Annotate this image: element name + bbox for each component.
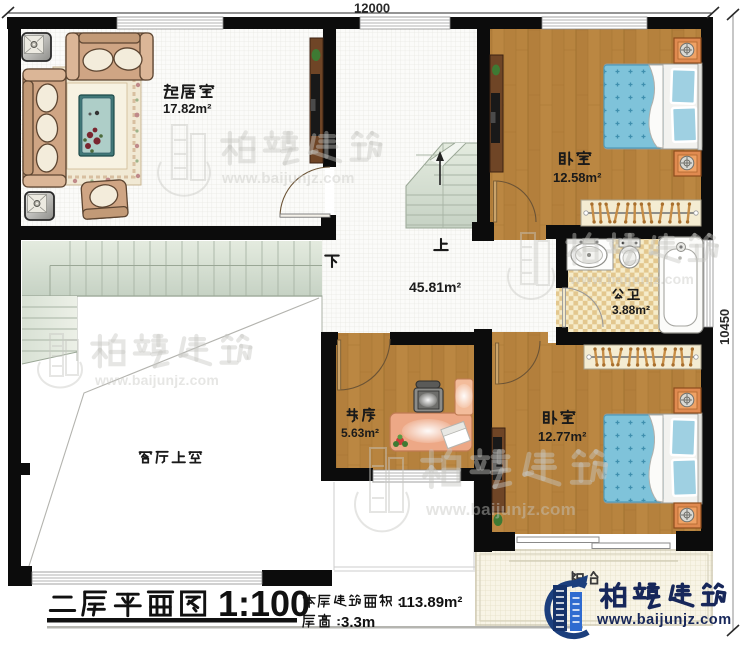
svg-text:45.81m²: 45.81m² <box>409 279 461 295</box>
svg-text:www.baijunjz.com: www.baijunjz.com <box>569 271 694 287</box>
svg-text:3.88m²: 3.88m² <box>612 303 650 317</box>
svg-text:12000: 12000 <box>354 1 390 16</box>
svg-text:12.58m²: 12.58m² <box>553 170 602 185</box>
svg-text:www.baijunjz.com: www.baijunjz.com <box>425 500 576 519</box>
svg-text:3.3m: 3.3m <box>341 614 375 631</box>
svg-text:10450: 10450 <box>717 309 732 345</box>
svg-text:www.baijunjz.com: www.baijunjz.com <box>596 612 732 628</box>
svg-text:www.baijunjz.com: www.baijunjz.com <box>221 170 355 187</box>
svg-text:www.baijunjz.com: www.baijunjz.com <box>94 372 219 388</box>
svg-text:5.63m²: 5.63m² <box>341 426 379 440</box>
svg-text:113.89m²: 113.89m² <box>399 594 462 611</box>
svg-text:12.77m²: 12.77m² <box>538 429 587 444</box>
svg-text:17.82m²: 17.82m² <box>163 101 212 116</box>
svg-text:1:100: 1:100 <box>218 583 310 624</box>
